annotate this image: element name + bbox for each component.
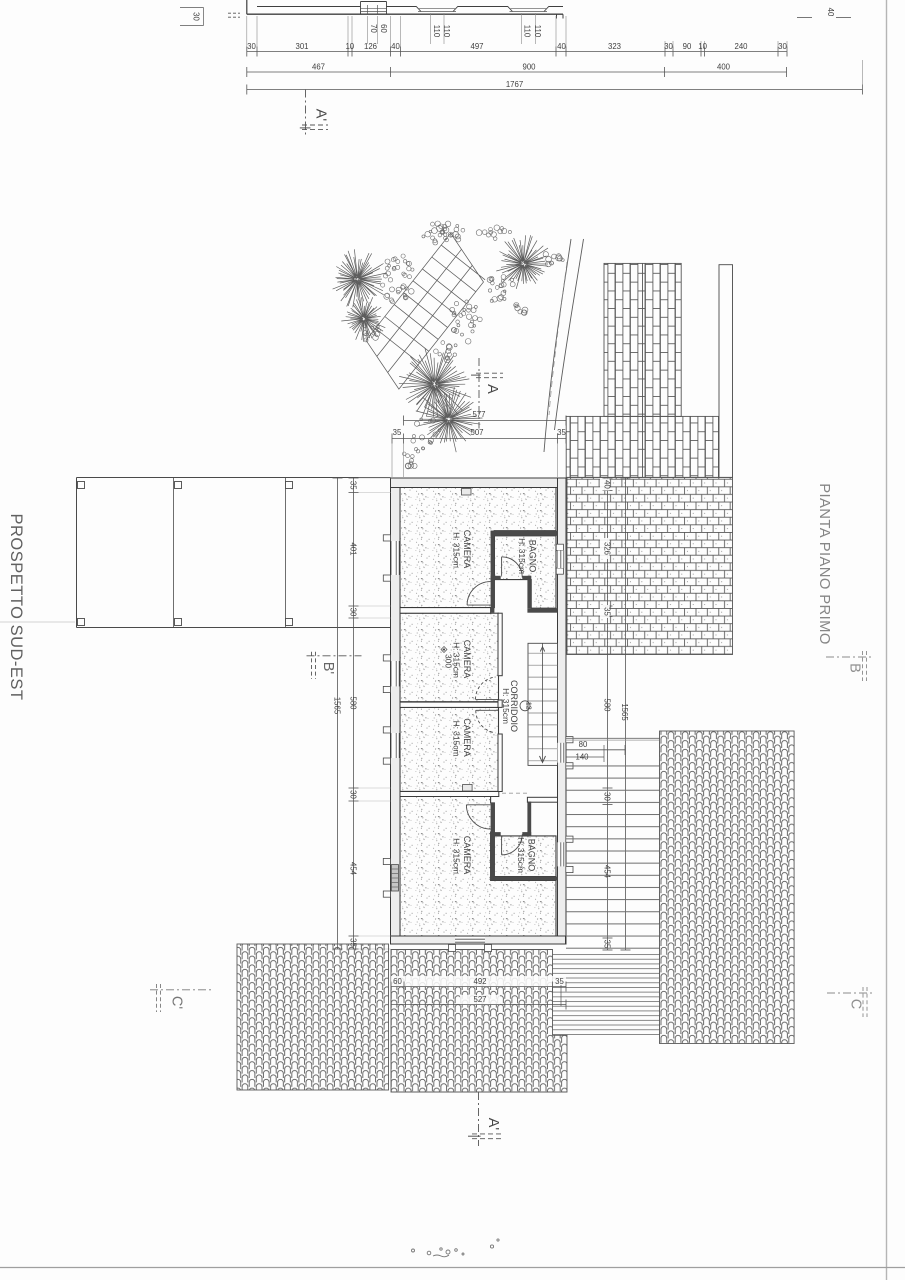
svg-text:580: 580: [349, 696, 358, 710]
svg-text:126: 126: [364, 42, 377, 51]
svg-text:110: 110: [533, 25, 542, 38]
svg-text:240: 240: [734, 42, 748, 51]
svg-text:BAGNO: BAGNO: [528, 540, 538, 573]
svg-text:35: 35: [393, 428, 402, 437]
svg-text:492: 492: [473, 977, 486, 986]
svg-text:C': C': [169, 996, 185, 1009]
svg-text:H: 315cm: H: 315cm: [517, 538, 527, 574]
svg-text:30: 30: [349, 608, 358, 617]
svg-text:40: 40: [603, 480, 612, 489]
svg-text:110: 110: [432, 25, 441, 38]
svg-text:B': B': [320, 662, 336, 675]
svg-text:10: 10: [345, 42, 354, 51]
svg-text:35: 35: [555, 977, 564, 986]
svg-text:140: 140: [575, 753, 589, 762]
svg-text:300: 300: [444, 654, 454, 668]
svg-text:467: 467: [312, 63, 325, 72]
svg-text:60: 60: [393, 977, 402, 986]
svg-text:PROSPETTO SUD-EST: PROSPETTO SUD-EST: [7, 514, 25, 701]
svg-text:70: 70: [369, 24, 378, 33]
svg-text:30: 30: [349, 790, 358, 799]
svg-text:326: 326: [603, 542, 612, 555]
svg-text:12: 12: [525, 702, 532, 710]
svg-text:A: A: [484, 384, 500, 394]
svg-text:40: 40: [391, 42, 400, 51]
svg-text:80: 80: [579, 740, 588, 749]
svg-text:H: 315cm: H: 315cm: [452, 838, 462, 874]
svg-text:1565: 1565: [620, 703, 629, 721]
svg-text:90: 90: [683, 42, 692, 51]
svg-text:40: 40: [826, 8, 835, 17]
svg-text:H: 315cm: H: 315cm: [501, 688, 511, 724]
svg-text:35: 35: [603, 607, 612, 616]
svg-text:30: 30: [247, 42, 256, 51]
svg-text:60: 60: [379, 24, 388, 33]
svg-text:A': A': [485, 1118, 501, 1131]
svg-text:H: 315cm: H: 315cm: [516, 837, 526, 873]
svg-text:CAMERA: CAMERA: [462, 640, 472, 679]
svg-text:35: 35: [557, 428, 566, 437]
svg-text:507: 507: [470, 428, 483, 437]
svg-text:110: 110: [442, 25, 451, 38]
svg-text:C: C: [848, 999, 864, 1009]
svg-text:1565: 1565: [333, 697, 342, 715]
svg-text:110: 110: [523, 25, 532, 38]
svg-text:10: 10: [698, 42, 707, 51]
svg-text:BAGNO: BAGNO: [527, 839, 537, 872]
svg-text:H: 315cm: H: 315cm: [452, 532, 462, 568]
svg-text:B: B: [847, 663, 863, 673]
svg-text:301: 301: [295, 42, 308, 51]
svg-text:900: 900: [522, 63, 536, 72]
svg-text:527: 527: [473, 995, 486, 1004]
svg-text:401: 401: [349, 542, 358, 555]
svg-text:A': A': [313, 109, 329, 122]
svg-text:CAMERA: CAMERA: [462, 718, 472, 757]
svg-text:30: 30: [192, 12, 201, 21]
svg-text:PIANTA PIANO PRIMO: PIANTA PIANO PRIMO: [816, 483, 832, 645]
svg-text:30: 30: [664, 42, 673, 51]
svg-text:40: 40: [557, 42, 566, 51]
svg-text:497: 497: [470, 42, 483, 51]
svg-text:1767: 1767: [506, 80, 523, 89]
svg-text:H: 315cm: H: 315cm: [452, 721, 462, 757]
svg-text:30: 30: [778, 42, 787, 51]
svg-text:CAMERA: CAMERA: [462, 530, 472, 569]
svg-text:454: 454: [349, 862, 358, 876]
svg-text:323: 323: [608, 42, 621, 51]
svg-text:CAMERA: CAMERA: [462, 836, 472, 875]
svg-text:35: 35: [349, 481, 358, 490]
svg-text:580: 580: [603, 698, 612, 712]
svg-text:400: 400: [717, 63, 731, 72]
